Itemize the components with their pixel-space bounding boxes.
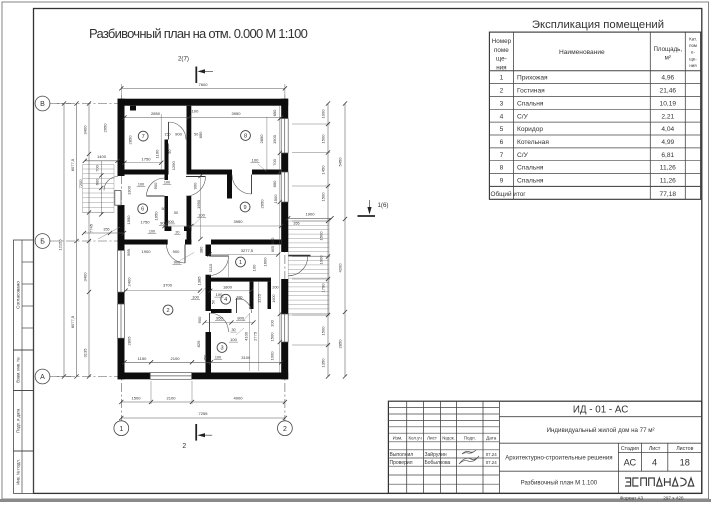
svg-text:4000: 4000 [233,396,243,401]
svg-text:100: 100 [230,337,238,342]
svg-text:Спальня: Спальня [517,100,544,107]
svg-text:А: А [40,374,45,381]
svg-text:3700: 3700 [163,282,173,287]
svg-text:Разбивочный план М 1.100: Разбивочный план М 1.100 [521,480,598,487]
svg-text:700: 700 [95,164,100,172]
svg-text:4200: 4200 [338,263,343,273]
svg-text:1950: 1950 [154,211,159,221]
svg-text:Инв. № подл.: Инв. № подл. [16,459,21,485]
svg-text:100: 100 [252,264,257,272]
svg-text:1000: 1000 [270,351,275,361]
svg-text:2100: 2100 [166,396,176,401]
svg-text:4: 4 [500,113,504,120]
svg-text:1400: 1400 [97,154,107,159]
svg-text:С/У: С/У [517,152,529,159]
svg-text:1: 1 [239,260,242,266]
svg-text:ще-: ще- [689,56,697,61]
svg-text:4: 4 [224,297,227,303]
svg-text:9: 9 [244,205,247,211]
svg-text:100: 100 [215,356,221,360]
svg-text:100: 100 [269,319,274,327]
svg-text:650: 650 [272,180,277,188]
svg-text:Спальня: Спальня [517,165,544,172]
svg-text:Разбивочный план на отм. 0.000: Разбивочный план на отм. 0.000 М 1:100 [89,26,308,41]
svg-text:11,26: 11,26 [660,178,676,185]
svg-text:1000: 1000 [319,255,324,265]
svg-text:150: 150 [164,132,170,136]
svg-text:200: 200 [272,285,278,289]
svg-text:ния: ния [496,64,506,71]
svg-text:1110: 1110 [208,263,213,272]
svg-text:1500: 1500 [270,332,275,342]
svg-text:1: 1 [119,426,123,433]
svg-text:1(6): 1(6) [377,202,388,209]
svg-text:3400: 3400 [83,125,88,135]
svg-text:Подп.: Подп. [464,436,476,441]
svg-text:Наименование: Наименование [559,49,605,56]
svg-text:2(7): 2(7) [178,56,189,63]
svg-text:4,99: 4,99 [661,139,674,146]
svg-text:900: 900 [174,260,182,265]
svg-text:ния: ния [689,63,697,68]
svg-text:4: 4 [652,458,657,468]
svg-text:6077,5: 6077,5 [70,158,75,171]
svg-text:7255: 7255 [198,411,208,416]
svg-text:700: 700 [272,158,277,166]
svg-text:2400: 2400 [127,277,132,287]
svg-text:Кол.уч: Кол.уч [409,436,422,441]
svg-text:100: 100 [138,183,144,187]
svg-text:1500: 1500 [321,326,326,336]
svg-text:355: 355 [293,222,299,226]
svg-text:1385: 1385 [197,276,202,286]
svg-text:6: 6 [500,139,504,146]
svg-text:850: 850 [198,131,203,139]
svg-text:1450: 1450 [321,165,326,175]
svg-text:900: 900 [153,182,158,190]
svg-text:1600: 1600 [263,257,268,267]
svg-text:Лист: Лист [427,436,438,441]
svg-text:07.24: 07.24 [486,460,498,465]
svg-text:ИД - 01 - АС: ИД - 01 - АС [573,405,628,416]
svg-text:950: 950 [216,316,224,321]
svg-text:7200: 7200 [78,179,83,189]
svg-text:Выполнил: Выполнил [390,452,414,458]
svg-text:77,18: 77,18 [660,191,677,198]
svg-text:Индивидуальный жилой дом на 77: Индивидуальный жилой дом на 77 м² [547,427,655,434]
svg-text:5450: 5450 [338,157,343,167]
svg-text:Площадь,: Площадь, [653,46,682,53]
svg-text:11,26: 11,26 [660,165,676,172]
svg-text:900: 900 [197,316,202,324]
svg-text:В: В [40,101,45,108]
svg-text:100: 100 [252,158,260,163]
svg-text:20: 20 [175,231,179,235]
svg-text:650: 650 [272,109,277,117]
svg-text:2805: 2805 [127,336,132,346]
svg-text:е-: е- [691,50,695,55]
svg-text:1500: 1500 [321,192,326,202]
svg-text:595: 595 [126,248,131,256]
svg-text:поме: поме [494,47,509,54]
svg-text:1500: 1500 [273,194,278,204]
svg-text:3950: 3950 [233,219,243,224]
svg-text:100: 100 [198,213,206,218]
svg-text:Б: Б [40,239,45,246]
svg-text:Листов: Листов [676,446,693,452]
svg-text:2950: 2950 [103,123,108,133]
svg-text:Прихожая: Прихожая [517,75,548,82]
svg-text:3950: 3950 [231,111,241,116]
svg-text:1500: 1500 [272,134,277,144]
svg-text:3400: 3400 [83,272,88,282]
svg-text:800: 800 [270,237,275,245]
svg-text:355: 355 [103,228,109,232]
svg-text:Формат А3: Формат А3 [620,495,644,500]
svg-text:1300: 1300 [127,185,132,195]
svg-text:2100: 2100 [170,356,180,361]
svg-text:1000: 1000 [321,109,326,119]
svg-text:1800: 1800 [223,284,233,289]
svg-text:12155: 12155 [58,239,63,251]
svg-text:1900: 1900 [305,211,315,216]
svg-text:Стадия: Стадия [621,446,639,452]
svg-text:5: 5 [500,126,504,133]
svg-text:600: 600 [95,178,100,186]
svg-text:3277,5: 3277,5 [241,248,254,253]
svg-text:800: 800 [237,316,245,321]
svg-text:Согласовано: Согласовано [16,281,21,309]
svg-text:450: 450 [204,355,208,361]
svg-text:100: 100 [192,295,200,300]
svg-text:АС: АС [624,458,637,468]
svg-text:4,04: 4,04 [661,126,674,133]
svg-text:180: 180 [236,295,242,299]
svg-text:07.24: 07.24 [486,452,498,457]
svg-text:Номер: Номер [492,38,512,45]
svg-text:1750: 1750 [141,157,151,162]
svg-text:1550: 1550 [126,215,131,225]
svg-text:1290: 1290 [171,160,176,170]
svg-text:1150: 1150 [138,356,147,361]
svg-text:6077,5: 6077,5 [70,315,75,328]
svg-text:50: 50 [174,211,178,215]
svg-text:Лист: Лист [649,446,661,452]
svg-text:100: 100 [164,181,170,185]
svg-text:2775: 2775 [253,331,258,341]
svg-text:3: 3 [500,100,504,107]
svg-text:1: 1 [500,75,504,82]
svg-text:7745: 7745 [89,223,94,233]
svg-text:2950: 2950 [260,199,265,209]
svg-text:Общий итог: Общий итог [491,190,527,198]
svg-text:1500: 1500 [319,231,324,241]
svg-text:7: 7 [142,134,145,140]
svg-text:4100: 4100 [243,331,248,341]
svg-text:900: 900 [193,182,198,190]
svg-text:50: 50 [161,207,165,211]
svg-text:Экспликация помещений: Экспликация помещений [532,19,664,31]
svg-text:2850: 2850 [259,134,264,144]
svg-text:7: 7 [500,152,504,159]
svg-text:м²: м² [665,55,671,62]
svg-text:2850: 2850 [338,339,343,349]
svg-text:900: 900 [167,219,175,224]
svg-text:825: 825 [196,340,201,348]
svg-text:100: 100 [192,109,200,114]
svg-text:50: 50 [212,300,216,304]
svg-text:805: 805 [271,246,275,252]
svg-text:7600: 7600 [198,82,208,87]
svg-text:18: 18 [680,458,690,468]
svg-text:2: 2 [166,308,169,314]
svg-text:9: 9 [500,178,504,185]
svg-text:297 х 420: 297 х 420 [663,495,684,500]
svg-text:900: 900 [173,249,181,254]
svg-text:100: 100 [149,230,155,234]
svg-text:1350: 1350 [321,358,326,368]
svg-text:Гостиная: Гостиная [517,88,545,95]
svg-text:1500: 1500 [321,134,326,144]
svg-text:Взам. инв. №: Взам. инв. № [16,357,21,383]
svg-text:Бобылкова: Бобылкова [425,460,451,466]
svg-text:Коридор: Коридор [517,126,543,133]
svg-text:2850: 2850 [128,135,133,145]
svg-text:1190: 1190 [154,149,159,158]
svg-text:8: 8 [500,165,504,172]
svg-text:Зайрулин: Зайрулин [425,451,447,458]
svg-text:1700: 1700 [321,283,326,293]
svg-text:30: 30 [231,328,235,332]
svg-text:6: 6 [141,207,144,213]
svg-text:10,19: 10,19 [660,100,677,107]
svg-text:Спальня: Спальня [517,178,544,185]
svg-text:2850: 2850 [151,111,161,116]
svg-text:2: 2 [500,88,504,95]
svg-text:380: 380 [199,246,204,254]
svg-text:21,46: 21,46 [660,88,677,95]
svg-text:900: 900 [175,131,183,136]
svg-text:3: 3 [220,346,223,352]
svg-text:Проверил: Проверил [390,460,413,466]
svg-text:Архитектурно-строительные реше: Архитектурно-строительные решения [505,455,612,462]
svg-text:1225: 1225 [257,293,262,303]
svg-text:пом: пом [689,43,697,48]
svg-text:2: 2 [182,443,186,450]
svg-text:Кат.: Кат. [689,37,697,42]
svg-text:1950: 1950 [196,199,201,209]
svg-text:2: 2 [283,426,287,433]
svg-text:Подп. и дата: Подп. и дата [16,408,21,433]
svg-text:4,96: 4,96 [661,75,674,82]
svg-text:1500: 1500 [131,396,141,401]
svg-text:2,21: 2,21 [661,113,674,120]
svg-text:1750: 1750 [140,220,150,225]
svg-text:ще-: ще- [496,56,507,63]
svg-text:Дата: Дата [486,436,497,441]
svg-text:50: 50 [168,149,172,153]
svg-text:3135: 3135 [83,348,88,358]
svg-text:С/У: С/У [517,113,529,120]
svg-text:Изм.: Изм. [393,436,403,441]
svg-text:1900: 1900 [141,249,151,254]
svg-text:Котельная: Котельная [517,139,549,146]
svg-text:6,81: 6,81 [661,152,674,159]
svg-text:100: 100 [216,292,224,297]
svg-text:№док.: №док. [442,436,455,441]
svg-text:8: 8 [244,134,247,140]
svg-text:1600: 1600 [272,294,276,302]
